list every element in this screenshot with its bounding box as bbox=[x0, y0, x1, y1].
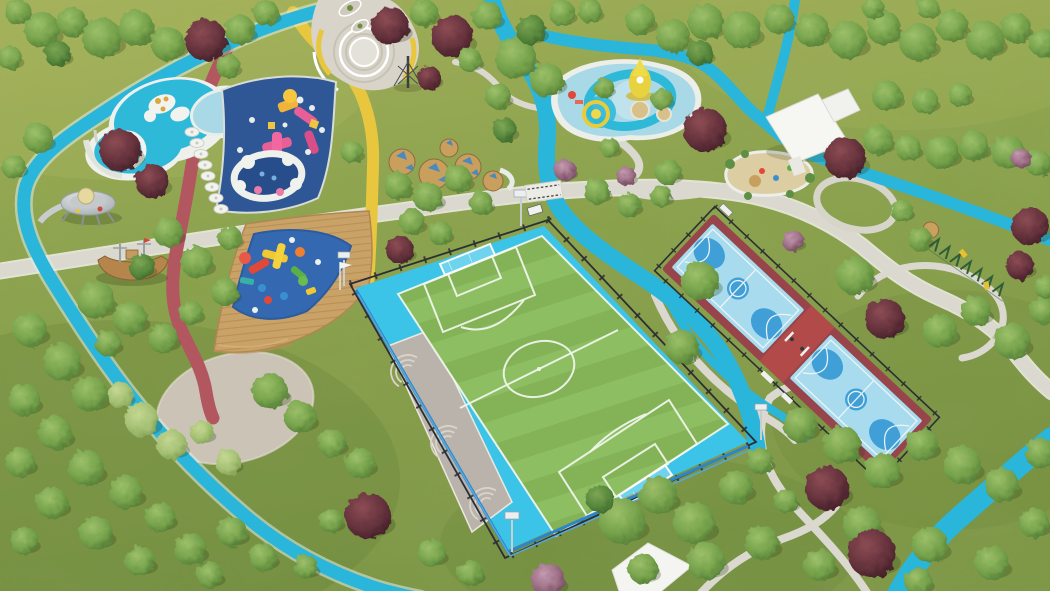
tree bbox=[2, 155, 26, 179]
tree bbox=[82, 18, 122, 58]
tree bbox=[472, 1, 502, 31]
tree bbox=[948, 83, 972, 107]
tree bbox=[319, 509, 343, 533]
tree bbox=[628, 554, 658, 584]
tree bbox=[36, 487, 68, 519]
tree bbox=[135, 164, 169, 198]
tree bbox=[179, 301, 203, 325]
tree bbox=[683, 108, 727, 152]
tree bbox=[174, 533, 206, 565]
tree bbox=[318, 429, 346, 457]
tree bbox=[584, 178, 610, 204]
tree bbox=[57, 7, 87, 37]
tree bbox=[656, 19, 690, 53]
tree bbox=[681, 262, 719, 300]
park-svg bbox=[0, 0, 1050, 591]
tree bbox=[959, 131, 989, 161]
tree bbox=[899, 23, 937, 61]
tree bbox=[925, 135, 959, 169]
tree bbox=[745, 526, 779, 560]
park-aerial-render bbox=[0, 0, 1050, 591]
tree bbox=[79, 516, 113, 550]
tree bbox=[218, 226, 242, 250]
tree bbox=[625, 5, 655, 35]
tree bbox=[554, 159, 576, 181]
tree bbox=[994, 323, 1030, 359]
tree bbox=[399, 209, 425, 235]
ufo-dome bbox=[78, 188, 94, 204]
tree bbox=[148, 323, 178, 353]
tree bbox=[125, 546, 155, 576]
tree bbox=[651, 88, 673, 110]
tree bbox=[865, 299, 905, 339]
tree bbox=[145, 502, 175, 532]
tree bbox=[863, 125, 893, 155]
tree bbox=[345, 493, 391, 539]
tree bbox=[836, 257, 874, 295]
tree bbox=[549, 0, 575, 26]
tree bbox=[458, 48, 482, 72]
tree bbox=[413, 182, 443, 212]
water-play-area bbox=[551, 58, 701, 142]
tree bbox=[107, 382, 133, 408]
tree bbox=[190, 420, 214, 444]
tree bbox=[747, 448, 773, 474]
tree bbox=[975, 546, 1009, 580]
tree bbox=[961, 296, 991, 326]
tree bbox=[13, 313, 47, 347]
tree bbox=[895, 135, 921, 161]
tree bbox=[341, 141, 363, 163]
tree bbox=[43, 343, 81, 381]
tree bbox=[586, 485, 614, 513]
tree bbox=[665, 330, 699, 364]
tree bbox=[688, 4, 724, 40]
tree bbox=[966, 21, 1004, 59]
tree bbox=[157, 430, 187, 460]
tree bbox=[639, 476, 677, 514]
tree bbox=[864, 453, 900, 489]
tree bbox=[912, 527, 948, 563]
tree bbox=[1011, 148, 1031, 168]
tree bbox=[805, 466, 849, 510]
tree bbox=[211, 278, 239, 306]
tree bbox=[804, 549, 836, 581]
tree bbox=[95, 330, 121, 356]
tree bbox=[829, 21, 867, 59]
tree bbox=[284, 401, 316, 433]
tree bbox=[795, 13, 829, 47]
tree bbox=[985, 468, 1019, 502]
tree bbox=[912, 88, 938, 114]
tree bbox=[650, 185, 672, 207]
tree bbox=[723, 11, 761, 49]
tree bbox=[594, 78, 614, 98]
tree bbox=[109, 475, 143, 509]
tree bbox=[1006, 252, 1034, 280]
tree bbox=[99, 129, 141, 171]
tree bbox=[687, 40, 713, 66]
tree bbox=[249, 543, 277, 571]
tree bbox=[824, 137, 866, 179]
tree bbox=[428, 221, 452, 245]
tree bbox=[294, 555, 318, 579]
tree bbox=[5, 447, 35, 477]
tree bbox=[530, 63, 564, 97]
tree bbox=[923, 314, 957, 348]
tree bbox=[68, 450, 104, 486]
tree bbox=[774, 489, 798, 513]
tree bbox=[216, 54, 240, 78]
tree bbox=[782, 230, 804, 252]
tree bbox=[493, 118, 517, 142]
tree bbox=[45, 41, 71, 67]
tree bbox=[906, 429, 938, 461]
tree bbox=[197, 562, 223, 588]
tree bbox=[908, 227, 932, 251]
tree bbox=[687, 542, 725, 580]
tree bbox=[72, 376, 108, 412]
tree bbox=[578, 0, 602, 23]
tree bbox=[118, 10, 154, 46]
tree bbox=[783, 408, 817, 442]
tree bbox=[417, 66, 441, 90]
tree bbox=[891, 200, 913, 222]
tree bbox=[485, 83, 511, 109]
tree bbox=[600, 138, 620, 158]
tree bbox=[848, 530, 896, 578]
tree bbox=[129, 254, 155, 280]
tree bbox=[151, 27, 185, 61]
tree bbox=[655, 159, 681, 185]
tree bbox=[764, 4, 794, 34]
tree bbox=[225, 15, 255, 45]
tree bbox=[10, 527, 38, 555]
tree bbox=[125, 403, 159, 437]
tree bbox=[469, 191, 493, 215]
tree bbox=[386, 236, 414, 264]
tree bbox=[616, 166, 636, 186]
tree bbox=[253, 0, 279, 26]
tree bbox=[215, 449, 241, 475]
tree bbox=[345, 448, 375, 478]
tree bbox=[77, 281, 115, 319]
tree bbox=[252, 373, 288, 409]
toddler-playground-mat bbox=[216, 76, 336, 212]
tree bbox=[371, 7, 409, 45]
tree bbox=[23, 123, 53, 153]
tree bbox=[113, 301, 147, 335]
tree bbox=[153, 217, 183, 247]
tree bbox=[617, 193, 641, 217]
tree bbox=[457, 560, 483, 586]
tree bbox=[185, 19, 227, 61]
tree bbox=[217, 517, 247, 547]
tree bbox=[8, 384, 40, 416]
tree bbox=[410, 0, 438, 27]
tree bbox=[943, 446, 981, 484]
tree bbox=[1019, 508, 1049, 538]
tree bbox=[516, 15, 546, 45]
sand-island bbox=[631, 101, 649, 119]
tree bbox=[444, 165, 472, 193]
tree bbox=[418, 539, 446, 567]
tree bbox=[384, 172, 412, 200]
tree bbox=[872, 81, 902, 111]
tree bbox=[936, 10, 968, 42]
tree bbox=[823, 426, 861, 464]
tree bbox=[719, 470, 753, 504]
tree bbox=[1001, 13, 1031, 43]
tree bbox=[181, 246, 213, 278]
tree bbox=[38, 416, 72, 450]
tree bbox=[673, 502, 715, 544]
tree bbox=[1011, 207, 1049, 245]
